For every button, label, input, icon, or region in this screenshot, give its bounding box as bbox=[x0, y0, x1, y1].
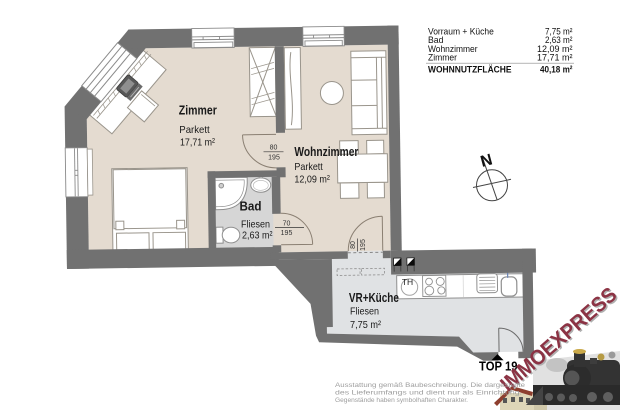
svg-text:7,75 m²: 7,75 m² bbox=[350, 319, 381, 331]
svg-text:Wohnzimmer: Wohnzimmer bbox=[294, 144, 358, 159]
svg-text:40,18 m²: 40,18 m² bbox=[540, 65, 573, 76]
svg-text:Parkett: Parkett bbox=[179, 124, 209, 136]
svg-text:195: 195 bbox=[360, 239, 367, 251]
svg-text:17,71 m²: 17,71 m² bbox=[537, 53, 573, 64]
svg-text:Zimmer: Zimmer bbox=[179, 103, 217, 118]
svg-text:N: N bbox=[479, 151, 495, 170]
svg-text:80: 80 bbox=[350, 241, 357, 249]
svg-text:17,71 m²: 17,71 m² bbox=[180, 136, 215, 148]
svg-text:des Lieferumfangs und dient nu: des Lieferumfangs und dient nur als Einr… bbox=[335, 390, 522, 397]
svg-text:TH: TH bbox=[402, 277, 413, 287]
svg-text:Gegenstände haben symbolhaften: Gegenstände haben symbolhaften Charakter… bbox=[335, 397, 468, 404]
svg-text:195: 195 bbox=[281, 230, 293, 237]
svg-text:WOHNNUTZFLÄCHE: WOHNNUTZFLÄCHE bbox=[428, 65, 512, 76]
svg-text:Bad: Bad bbox=[240, 199, 262, 214]
svg-text:70: 70 bbox=[283, 220, 291, 227]
svg-text:Zimmer: Zimmer bbox=[428, 53, 457, 64]
svg-text:80: 80 bbox=[270, 145, 278, 152]
svg-text:2,63 m²: 2,63 m² bbox=[242, 230, 273, 242]
svg-text:Parkett: Parkett bbox=[294, 161, 322, 173]
svg-text:12,09 m²: 12,09 m² bbox=[294, 174, 330, 186]
svg-text:Fliesen: Fliesen bbox=[350, 306, 379, 318]
svg-text:195: 195 bbox=[268, 155, 280, 162]
svg-text:Ausstattung gemäß Baubeschreib: Ausstattung gemäß Baubeschreibung. Die d… bbox=[335, 382, 526, 389]
svg-text:VR+Küche: VR+Küche bbox=[349, 290, 399, 305]
